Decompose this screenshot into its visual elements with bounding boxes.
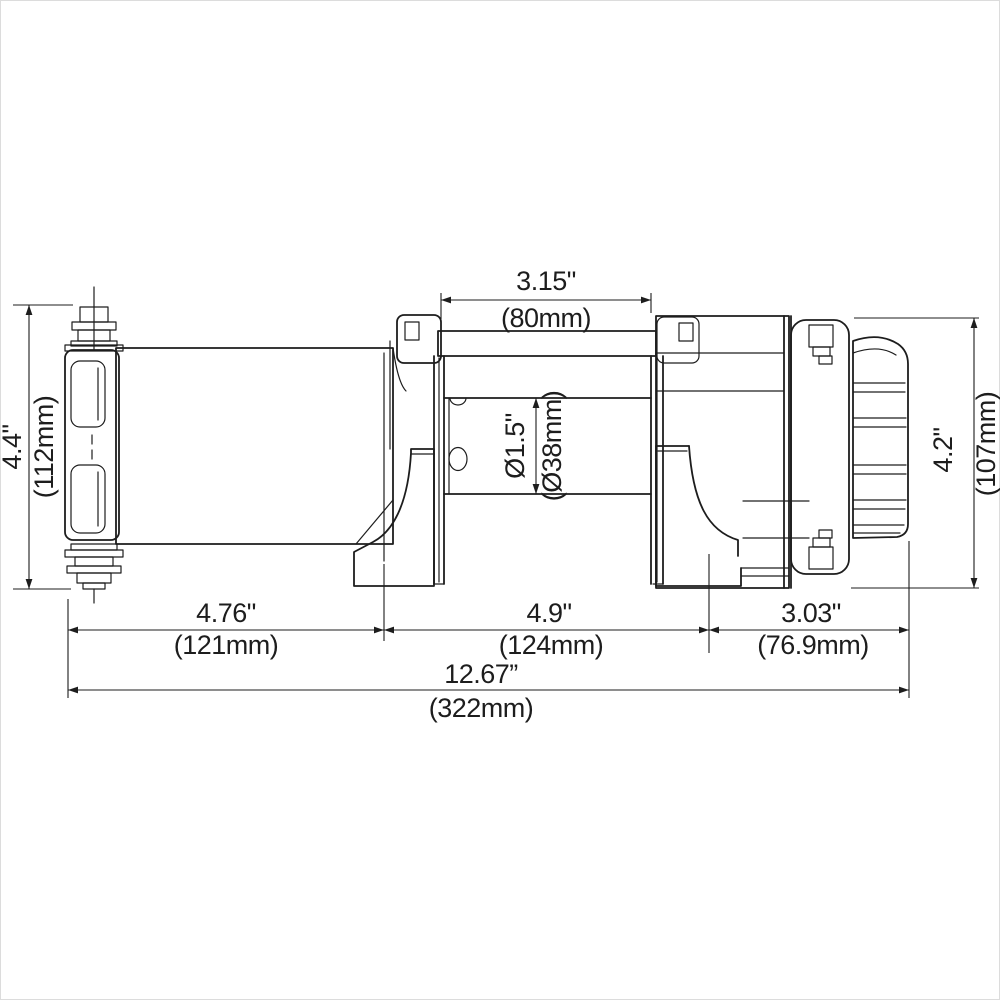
gearbox-assembly [656,316,849,588]
dim-overall-mm: (322mm) [429,693,534,723]
dimension-drum-width: 3.15" (80mm) [441,266,651,333]
dim-drum-dia-in: Ø1.5" [500,413,530,479]
arrowhead [68,627,78,634]
dim-motor-height-mm: (112mm) [29,396,59,499]
end-cap-slot-bottom [71,465,105,533]
motor-terminal-bottom [65,544,123,603]
arrowhead [899,627,909,634]
tie-bar [438,331,656,356]
dimension-gear-height: 4.2" (107mm) [851,318,1000,588]
arrowhead [26,305,33,315]
drawing-svg: 3.15" (80mm) 4.4" (112mm) 4.2" (107mm) Ø… [1,1,1000,1001]
winch-dimension-drawing: 3.15" (80mm) 4.4" (112mm) 4.2" (107mm) Ø… [0,0,1000,1000]
arrowhead [641,297,651,304]
dimension-overall-length: 12.67” (322mm) [68,659,909,723]
dim-drum-dia-mm: (Ø38mm) [537,391,567,502]
dim-drum-length-mm: (124mm) [499,630,604,660]
arrowhead [971,318,978,328]
dim-motor-height-in: 4.4" [1,424,27,469]
end-cap-slot-top [71,361,105,427]
mounting-foot-right [656,446,789,586]
rope-anchor-hole [449,448,467,471]
rope-hole-top [450,398,466,405]
motor-terminal-top [65,287,123,351]
dim-gear-length-in: 3.03" [781,598,841,628]
arrowhead [441,297,451,304]
arrowhead [26,579,33,589]
dim-overall-in: 12.67” [444,659,518,689]
arrowhead [971,578,978,588]
arrowhead [899,687,909,694]
arrowhead [374,627,384,634]
dimension-motor-height: 4.4" (112mm) [1,305,73,589]
arrowhead [384,627,394,634]
dim-gear-height-mm: (107mm) [971,392,1000,497]
clamp-bolt-bottom [809,547,833,569]
clutch-knob [853,337,908,538]
mounting-foot-left [354,449,434,586]
motor-end-cap [65,350,119,540]
gearbox-end-cover [791,320,849,574]
motor-assembly [65,348,406,544]
dim-drum-width-mm: (80mm) [501,303,591,333]
dimension-drum-diameter: Ø1.5" (Ø38mm) [500,391,567,502]
arrowhead [709,627,719,634]
dim-motor-length-mm: (121mm) [174,630,279,660]
dim-gear-length-mm: (76.9mm) [757,630,869,660]
arrowhead [68,687,78,694]
dim-drum-length-in: 4.9" [526,598,571,628]
dim-gear-height-in: 4.2" [928,427,958,472]
clamp-bolt-top [809,325,833,347]
gearbox-housing [656,316,789,588]
arrowhead [699,627,709,634]
dim-motor-length-in: 4.76" [196,598,256,628]
dim-drum-width-in: 3.15" [516,266,576,296]
